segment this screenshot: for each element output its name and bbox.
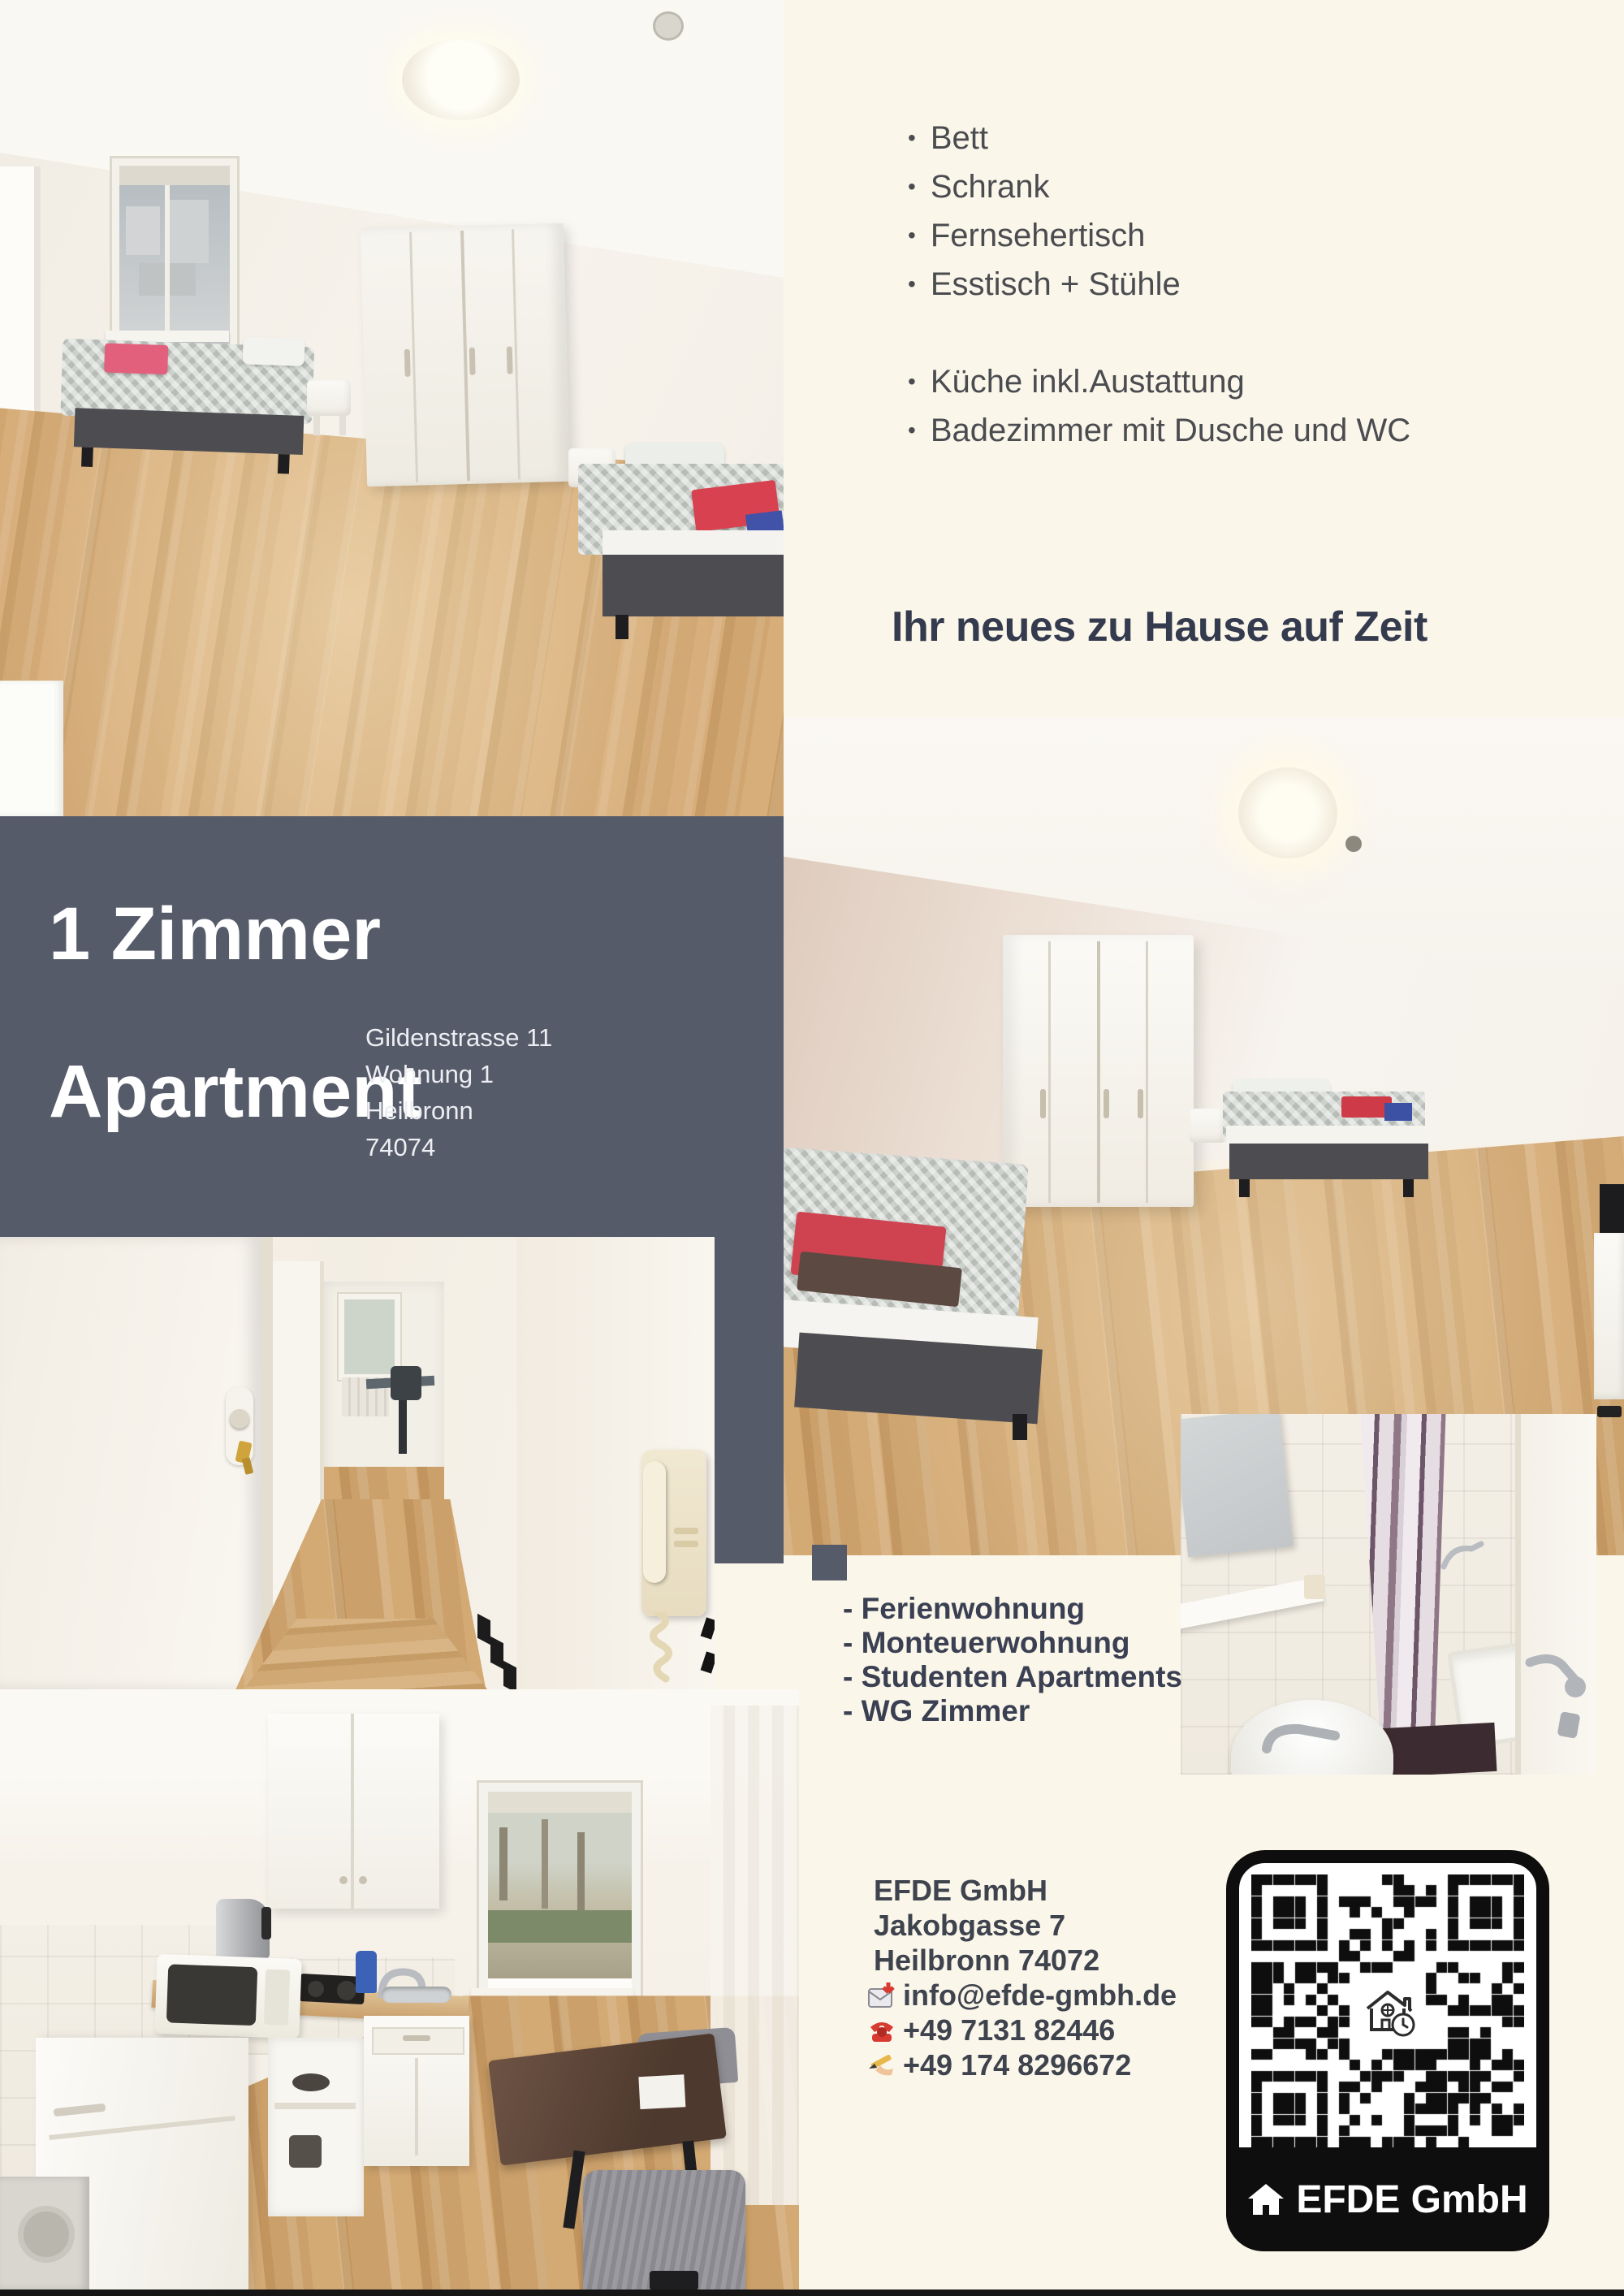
bullet-icon: •: [908, 407, 916, 453]
wardrobe-handle: [1138, 1089, 1143, 1118]
house-clock-icon: [1351, 1974, 1424, 2047]
smoke-detector-icon: [1345, 836, 1362, 852]
intercom-detail: [674, 1528, 698, 1534]
list-item: •Esstisch + Stühle: [908, 262, 1410, 310]
amenity-label: Schrank: [931, 164, 1050, 210]
contact-phone: +49 7131 82446: [903, 2013, 1115, 2047]
bed-pillow: [243, 336, 305, 366]
offer-item: - Monteuerwohnung: [843, 1626, 1182, 1660]
bed-base: [1229, 1144, 1428, 1179]
burner: [336, 1980, 356, 2000]
tree-trunk: [499, 1827, 508, 1900]
intercom-cord: [646, 1612, 687, 1689]
address-line: 74074: [365, 1129, 552, 1165]
wardrobe-handle: [404, 349, 411, 377]
envelope-down-icon: [867, 1981, 896, 2010]
bed-base: [603, 555, 784, 616]
power-adapter: [1597, 1406, 1622, 1417]
qr-label-band: EFDE GmbH: [1226, 2147, 1549, 2251]
bullet-icon: •: [908, 212, 916, 258]
ceiling-lamp: [402, 39, 520, 120]
wardrobe-door-seam: [409, 232, 418, 482]
cabinet-knob: [339, 1876, 348, 1884]
intercom-phone: [641, 1450, 706, 1616]
bed-leg: [615, 615, 628, 639]
photo-hallway: [0, 1237, 715, 1689]
bathroom-door: [1515, 1414, 1596, 1775]
tv-table: [1594, 1233, 1624, 1399]
offer-item: - Ferienwohnung: [843, 1592, 1182, 1626]
bed-left: [58, 331, 314, 469]
table-corner: [0, 681, 63, 816]
qr-label: EFDE GmbH: [1296, 2177, 1527, 2222]
wall-socket: [1304, 1575, 1325, 1599]
list-item: •Schrank: [908, 164, 1410, 213]
photo-bedroom-1: [0, 0, 784, 816]
stool-leg: [339, 414, 346, 435]
house-icon: [1247, 2182, 1285, 2216]
washing-machine: [0, 2177, 89, 2290]
contact-street: Jakobgasse 7: [867, 1908, 1177, 1943]
included-list: •Küche inkl.Austattung •Badezimmer mit D…: [908, 359, 1410, 456]
building-view: [126, 206, 160, 255]
offer-item: - Studenten Apartments: [843, 1660, 1182, 1694]
upper-cabinet: [268, 1714, 439, 1909]
contact-mobile: +49 174 8296672: [903, 2047, 1131, 2082]
pink-towel: [104, 343, 168, 374]
wardrobe-handle: [1104, 1089, 1109, 1118]
lower-cabinet: [364, 2016, 469, 2166]
list-item: •Küche inkl.Austattung: [908, 359, 1410, 408]
window-view: [488, 1813, 632, 1978]
sink: [382, 1987, 451, 2003]
tree-trunk: [542, 1819, 548, 1909]
window-blind: [119, 166, 230, 185]
contact-email: info@efde-gmbh.de: [903, 1978, 1177, 2013]
address-line: Wohnung 1: [365, 1056, 552, 1092]
cabinet-seam: [415, 2058, 418, 2155]
bed-leg: [1403, 1179, 1414, 1197]
contact-city: Heilbronn 74072: [867, 1943, 1177, 1978]
smoke-detector-icon: [653, 11, 684, 41]
offer-item: - WG Zimmer: [843, 1694, 1182, 1728]
contact-block: EFDE GmbH Jakobgasse 7 Heilbronn 74072 i…: [867, 1873, 1177, 2082]
bottom-edge-strip: [0, 2290, 1624, 2296]
wardrobe-door-seam: [1048, 941, 1051, 1203]
fridge-door-line: [49, 2116, 235, 2140]
bed-leg: [278, 454, 290, 473]
tagline-heading: Ihr neues zu Hause auf Zeit: [892, 603, 1427, 651]
amenity-label: Badezimmer mit Dusche und WC: [931, 408, 1410, 454]
kettle-handle: [261, 1907, 271, 1939]
contact-email-row: info@efde-gmbh.de: [867, 1978, 1177, 2013]
amenities-list: •Bett •Schrank •Fernsehertisch •Esstisch…: [908, 115, 1410, 456]
bullet-icon: •: [908, 261, 916, 307]
microwave-door: [166, 1964, 257, 2026]
door-lock: [1557, 1711, 1581, 1739]
drawer: [372, 2027, 464, 2055]
stool-leg: [313, 414, 320, 435]
microwave-panel: [264, 1970, 290, 2026]
burner: [307, 1980, 324, 1997]
address-line: Gildenstrasse 11: [365, 1019, 552, 1056]
bed-right: [578, 443, 784, 642]
bullet-icon: •: [908, 115, 916, 161]
building-view: [166, 200, 209, 263]
bed-base: [794, 1333, 1043, 1425]
hedge: [488, 1910, 632, 1943]
chair-leg: [399, 1400, 407, 1454]
dark-bowl: [292, 2073, 330, 2091]
mirror: [1181, 1414, 1294, 1557]
wardrobe-handle: [469, 348, 476, 375]
shelf: [274, 2103, 356, 2109]
photo-bathroom: [1181, 1414, 1596, 1775]
paper-sheet: [638, 2074, 685, 2109]
amenity-label: Esstisch + Stühle: [931, 262, 1181, 308]
drawer-handle: [403, 2035, 430, 2041]
amenity-label: Küche inkl.Austattung: [931, 359, 1245, 405]
bullet-icon: •: [908, 358, 916, 404]
wardrobe-handle: [507, 346, 513, 374]
kitchen-window: [479, 1783, 641, 2004]
bed-base: [74, 408, 304, 455]
bedside-stool: [307, 380, 351, 416]
sink-faucet: [1259, 1700, 1348, 1757]
blue-towel: [1384, 1103, 1412, 1121]
chair-base: [650, 2271, 698, 2290]
entrance-door: [0, 1237, 261, 1689]
qr-card: EFDE GmbH: [1226, 1850, 1549, 2251]
shower-fitting: [1439, 1526, 1488, 1575]
address-block: Gildenstrasse 11 Wohnung 1 Heilbronn 740…: [365, 1019, 552, 1165]
contact-phone-row: +49 7131 82446: [867, 2013, 1177, 2047]
offers-list: - Ferienwohnung - Monteuerwohnung - Stud…: [843, 1592, 1182, 1728]
list-item: •Bett: [908, 115, 1410, 164]
washer-door: [18, 2206, 75, 2263]
wardrobe-door-seam: [1146, 941, 1148, 1203]
bed-leg: [1239, 1179, 1250, 1197]
photo-kitchen: [0, 1689, 799, 2290]
door-handle: [1525, 1654, 1587, 1703]
wardrobe-handle: [1040, 1089, 1046, 1118]
flyer-page: •Bett •Schrank •Fernsehertisch •Esstisch…: [0, 0, 1624, 2296]
fridge-handle: [54, 2104, 106, 2117]
bedroom1-window: [112, 158, 237, 345]
writing-hand-icon: [867, 2051, 896, 2080]
red-telephone-icon: [867, 2016, 896, 2045]
title-line-1: 1 Zimmer: [49, 855, 422, 1013]
wardrobe-door-seam: [512, 229, 520, 479]
chair-back: [391, 1366, 421, 1400]
contact-mobile-row: +49 174 8296672: [867, 2047, 1177, 2082]
window-blind: [488, 1792, 632, 1813]
address-line: Heilbronn: [365, 1092, 552, 1129]
bed-leg: [81, 448, 93, 467]
list-item: •Fernsehertisch: [908, 213, 1410, 262]
wardrobe-door-seam: [1097, 941, 1100, 1203]
tv-screen: [1600, 1184, 1624, 1233]
cabinet-knob: [359, 1876, 367, 1884]
amenity-label: Fernsehertisch: [931, 213, 1146, 259]
microwave: [154, 1954, 301, 2039]
list-item: •Badezimmer mit Dusche und WC: [908, 408, 1410, 456]
bed-single: [1218, 1079, 1425, 1196]
open-cabinet: [268, 2038, 364, 2216]
bed-large: [784, 1156, 1043, 1448]
intercom-detail: [674, 1541, 698, 1547]
bed-leg: [1013, 1414, 1027, 1440]
bullet-icon: •: [908, 163, 916, 210]
amenity-label: Bett: [931, 115, 988, 162]
dish-soap: [356, 1951, 377, 1993]
door-knob: [230, 1409, 249, 1429]
contact-company: EFDE GmbH: [867, 1873, 1177, 1908]
wardrobe: [361, 223, 570, 486]
intercom-handset: [643, 1461, 666, 1583]
pot: [289, 2135, 322, 2168]
tree-trunk: [577, 1832, 585, 1910]
accent-square: [812, 1545, 847, 1580]
ceiling-lamp: [1238, 767, 1337, 858]
cabinet-seam: [351, 1714, 354, 1909]
